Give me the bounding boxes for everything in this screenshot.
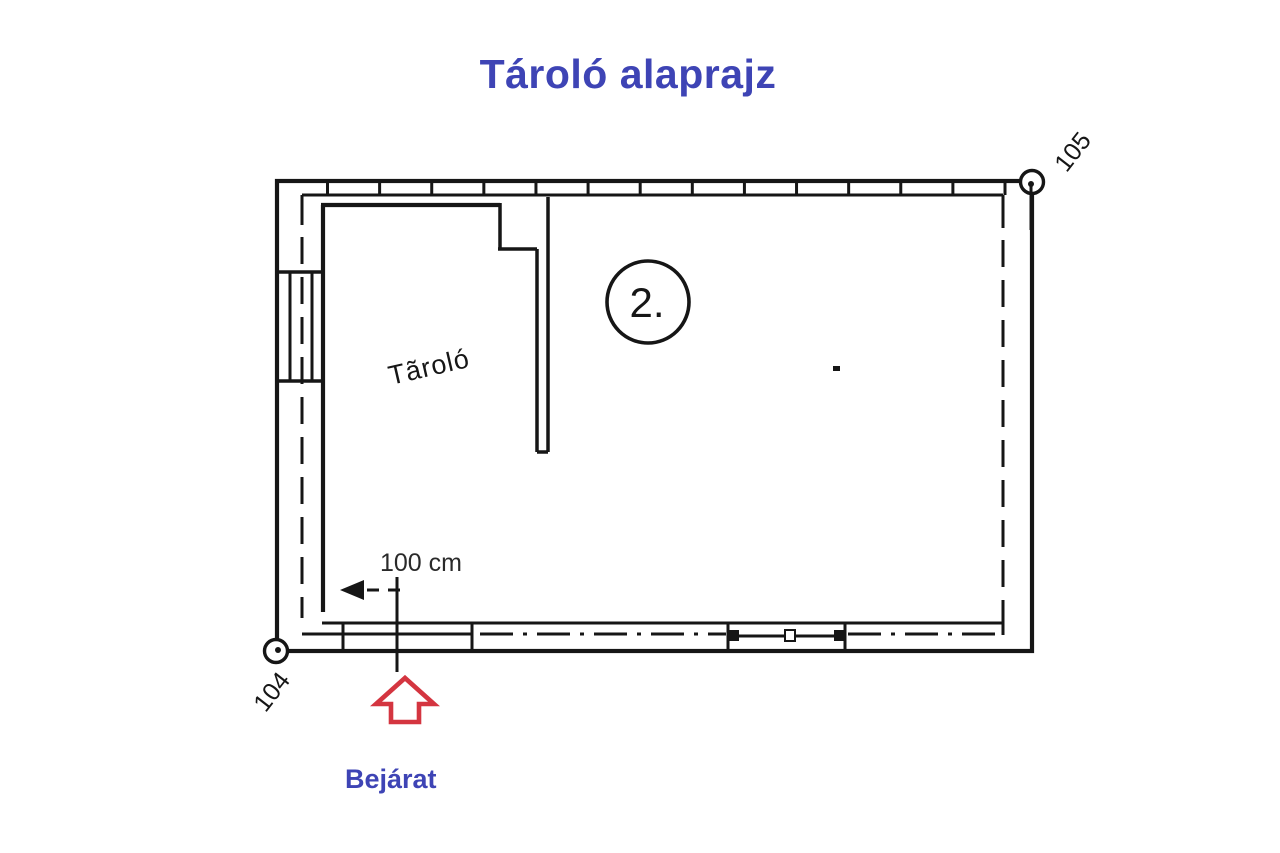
bottom-wall-window: [728, 623, 845, 650]
outer-walls: [277, 181, 1032, 651]
artifact-dot: [833, 366, 840, 371]
entrance-door-opening: [343, 623, 472, 650]
left-wall-window: [277, 272, 323, 381]
page-title: Tároló alaprajz: [480, 51, 777, 97]
corner-marker-105: 105: [1021, 127, 1097, 230]
entrance-annotation: Bejárat: [345, 678, 437, 794]
entrance-arrow-icon: [376, 678, 434, 722]
corner-marker-105-label: 105: [1049, 127, 1097, 177]
corner-marker-104: 104: [248, 640, 296, 718]
corner-marker-104-label: 104: [248, 667, 296, 717]
floor-plan-drawing: Tároló alaprajz: [0, 0, 1280, 853]
dimension-label: 100 cm: [380, 549, 462, 577]
entrance-label: Bejárat: [345, 764, 437, 794]
dimension-100cm: 100 cm: [340, 549, 462, 672]
room-label: Tãroló: [385, 343, 472, 391]
dimension-arrow-icon: [340, 580, 364, 600]
floor-plan-page: Tároló alaprajz: [0, 0, 1280, 853]
unit-number-badge: 2.: [607, 261, 689, 343]
unit-number: 2.: [629, 279, 664, 326]
